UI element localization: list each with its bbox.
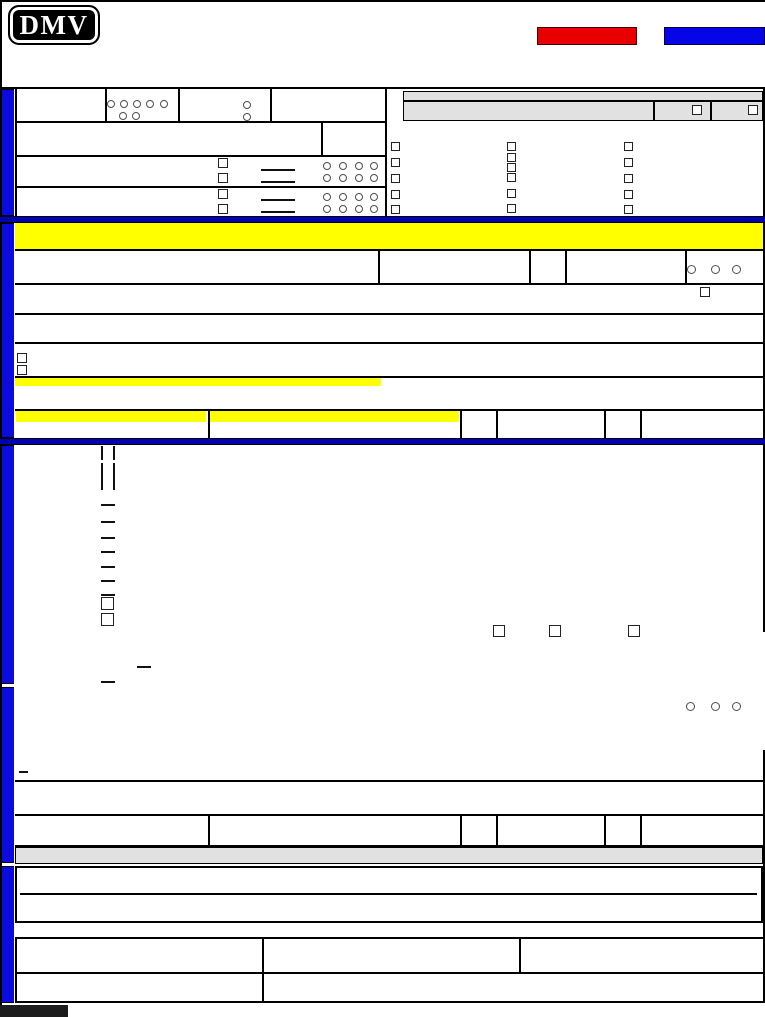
yellow-highlight-header: [15, 223, 763, 250]
checkbox[interactable]: [507, 153, 516, 162]
checkbox[interactable]: [700, 287, 710, 297]
radio-button[interactable]: [732, 702, 741, 711]
radio-button[interactable]: [355, 205, 363, 213]
checkbox[interactable]: [748, 105, 758, 115]
radio-button[interactable]: [323, 193, 331, 201]
radio-button[interactable]: [339, 193, 347, 201]
header-separator-line: [0, 87, 765, 89]
radio-button[interactable]: [119, 112, 127, 120]
grid-line: [15, 342, 763, 344]
section1-accent-bar: [2, 89, 14, 216]
grid-line: [15, 155, 386, 157]
dmv-logo: DMV: [8, 5, 100, 45]
blank-underline: [261, 211, 295, 213]
blank-underline: [137, 666, 151, 668]
radio-button[interactable]: [243, 113, 251, 121]
radio-button[interactable]: [370, 193, 378, 201]
radio-button[interactable]: [160, 100, 168, 108]
radio-button[interactable]: [323, 174, 331, 182]
dmv-logo-text: DMV: [20, 10, 89, 41]
checkbox[interactable]: [391, 174, 400, 183]
form-field[interactable]: [16, 973, 261, 1000]
checkbox[interactable]: [101, 613, 114, 626]
section-divider: [0, 438, 765, 445]
blank-underline: [101, 580, 115, 582]
grid-line: [178, 88, 180, 122]
radio-button[interactable]: [711, 265, 720, 274]
checkbox[interactable]: [507, 173, 516, 182]
radio-button[interactable]: [711, 702, 720, 711]
checkbox[interactable]: [507, 163, 516, 172]
grid-line: [270, 88, 272, 122]
checkbox[interactable]: [218, 189, 228, 199]
radio-button[interactable]: [732, 265, 741, 274]
radio-button[interactable]: [355, 174, 363, 182]
radio-button[interactable]: [323, 162, 331, 170]
blank-underline: [101, 521, 115, 523]
checkbox[interactable]: [624, 142, 633, 151]
radio-button[interactable]: [355, 193, 363, 201]
form-field[interactable]: [16, 285, 762, 312]
section3b-accent-bar: [2, 687, 14, 863]
blank-underline: [261, 181, 295, 183]
blank-underline: [101, 566, 115, 568]
section3-accent-bar: [2, 445, 14, 684]
page-right-border-upper: [763, 88, 765, 632]
grid-line: [460, 409, 462, 438]
grid-line: [604, 814, 606, 846]
form-field[interactable]: [16, 251, 377, 282]
grid-line: [321, 121, 323, 156]
grid-line: [15, 313, 763, 315]
grid-line: [403, 100, 763, 102]
form-field[interactable]: [16, 816, 207, 845]
form-field[interactable]: [566, 251, 684, 282]
vertical-bar-mark: [113, 463, 115, 490]
checkbox[interactable]: [391, 142, 400, 151]
gray-header-bar: [403, 91, 763, 121]
form-field[interactable]: [497, 410, 603, 437]
radio-button[interactable]: [686, 702, 695, 711]
radio-button[interactable]: [370, 174, 378, 182]
grid-line: [15, 121, 386, 123]
form-field[interactable]: [263, 973, 761, 1000]
grid-line: [710, 100, 712, 121]
checkbox[interactable]: [507, 204, 516, 213]
red-action-button[interactable]: [537, 27, 637, 45]
grid-line: [15, 88, 17, 216]
radio-button[interactable]: [339, 205, 347, 213]
checkbox[interactable]: [391, 190, 400, 199]
form-field[interactable]: [641, 410, 761, 437]
radio-button[interactable]: [243, 101, 251, 109]
dmv-form-page: DMV: [0, 0, 765, 1017]
vertical-bar-mark: [101, 446, 103, 460]
vertical-bar-mark: [113, 446, 115, 460]
checkbox[interactable]: [17, 353, 27, 363]
checkbox[interactable]: [507, 142, 516, 151]
form-field[interactable]: [641, 816, 761, 845]
form-field[interactable]: [210, 410, 459, 437]
form-field[interactable]: [16, 938, 261, 971]
vertical-bar-mark: [101, 463, 103, 490]
checkbox[interactable]: [624, 158, 633, 167]
checkbox[interactable]: [391, 158, 400, 167]
form-field[interactable]: [379, 251, 528, 282]
checkbox[interactable]: [624, 174, 633, 183]
checkbox[interactable]: [218, 173, 228, 183]
blank-underline: [19, 771, 28, 773]
write-in-line: [20, 893, 757, 895]
checkbox[interactable]: [493, 625, 505, 637]
radio-button[interactable]: [133, 100, 141, 108]
checkbox[interactable]: [624, 190, 633, 199]
form-field[interactable]: [520, 938, 761, 971]
checkbox[interactable]: [218, 158, 228, 168]
radio-button[interactable]: [323, 205, 331, 213]
radio-button[interactable]: [146, 100, 154, 108]
section2-accent-bar: [2, 223, 14, 438]
section4-accent-bar: [2, 866, 14, 1003]
blank-underline: [261, 199, 295, 201]
gray-separator-bar: [15, 847, 763, 864]
checkbox[interactable]: [692, 105, 702, 115]
radio-button[interactable]: [120, 100, 128, 108]
form-field[interactable]: [16, 410, 207, 437]
section-divider: [0, 216, 765, 223]
grid-line: [15, 780, 763, 782]
footer-block: [0, 1005, 68, 1017]
radio-button[interactable]: [339, 162, 347, 170]
form-field[interactable]: [497, 816, 603, 845]
page-top-border: [0, 0, 765, 2]
radio-button[interactable]: [339, 174, 347, 182]
checkbox[interactable]: [17, 365, 27, 375]
radio-button[interactable]: [687, 265, 696, 274]
form-field[interactable]: [263, 938, 518, 971]
radio-button[interactable]: [132, 112, 140, 120]
grid-line: [15, 186, 386, 188]
grid-line: [460, 814, 462, 846]
grid-line: [529, 250, 531, 284]
checkbox[interactable]: [218, 204, 228, 214]
form-field[interactable]: [210, 816, 459, 845]
yellow-highlight-line: [15, 378, 381, 386]
blank-underline: [261, 169, 295, 171]
grid-line: [15, 1001, 763, 1003]
radio-button[interactable]: [370, 205, 378, 213]
radio-button[interactable]: [370, 162, 378, 170]
checkbox[interactable]: [628, 625, 640, 637]
blank-underline: [101, 551, 115, 553]
radio-button[interactable]: [107, 100, 115, 108]
grid-line: [385, 88, 387, 216]
checkbox[interactable]: [101, 597, 114, 610]
grid-line: [653, 100, 655, 121]
blank-underline: [101, 504, 115, 506]
blank-underline: [101, 537, 115, 539]
grid-line: [604, 409, 606, 438]
blank-underline: [101, 594, 115, 596]
blue-action-button[interactable]: [664, 27, 765, 45]
checkbox[interactable]: [624, 205, 633, 214]
checkbox[interactable]: [391, 205, 400, 214]
checkbox[interactable]: [549, 625, 561, 637]
radio-button[interactable]: [355, 162, 363, 170]
blank-underline: [101, 681, 115, 683]
checkbox[interactable]: [507, 189, 516, 198]
